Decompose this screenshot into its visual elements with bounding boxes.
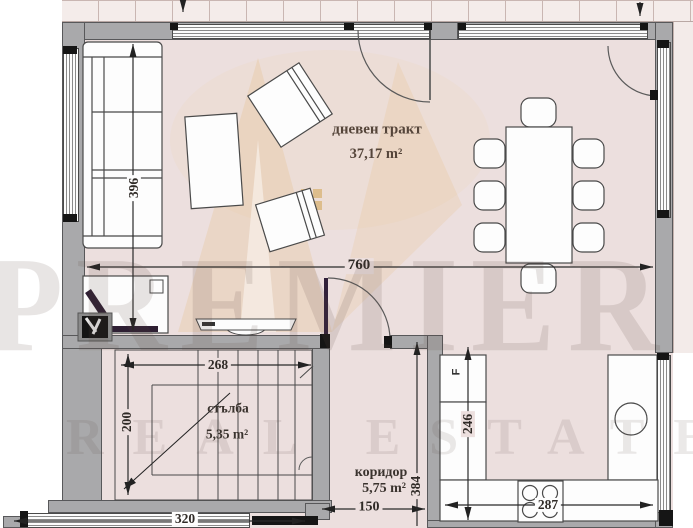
- stairs-area: 5,35 m²: [206, 427, 248, 441]
- sink: [615, 403, 647, 435]
- dim-384: 384: [409, 473, 423, 499]
- dining-table: [506, 127, 572, 263]
- corridor-name: коридор: [355, 466, 408, 480]
- terrace-door-arc: [358, 30, 430, 102]
- fireplace: [78, 276, 168, 341]
- dim-287: 287: [535, 498, 561, 512]
- tv: [196, 319, 296, 335]
- coffee-table: [185, 113, 243, 208]
- dim-150: 150: [356, 501, 383, 516]
- dining-set: [474, 98, 604, 293]
- chair: [521, 98, 556, 127]
- dim-246: 246: [461, 411, 475, 437]
- chair: [521, 264, 556, 293]
- living-room-area: 37,17 m²: [350, 147, 403, 162]
- corridor-area: 5,75 m²: [362, 482, 406, 496]
- dim-268: 268: [205, 358, 231, 372]
- fridge-label: F: [452, 369, 463, 376]
- stairs: [115, 350, 313, 500]
- terrace-door2-arc: [608, 46, 656, 96]
- armchair-2: [256, 188, 325, 252]
- dim-760: 760: [345, 258, 374, 274]
- corridor-door-arc: [328, 278, 390, 340]
- armchair-1: [248, 63, 332, 147]
- fridge: [440, 355, 486, 402]
- stairs-name: стълба: [207, 401, 249, 415]
- floor-plan: дневен тракт 37,17 m² стълба 5,35 m² кор…: [0, 0, 693, 528]
- dim-320: 320: [172, 512, 198, 526]
- sofa: [83, 42, 162, 248]
- dim-200: 200: [120, 409, 134, 435]
- living-room-name: дневен тракт: [332, 123, 421, 138]
- dim-396: 396: [127, 175, 141, 201]
